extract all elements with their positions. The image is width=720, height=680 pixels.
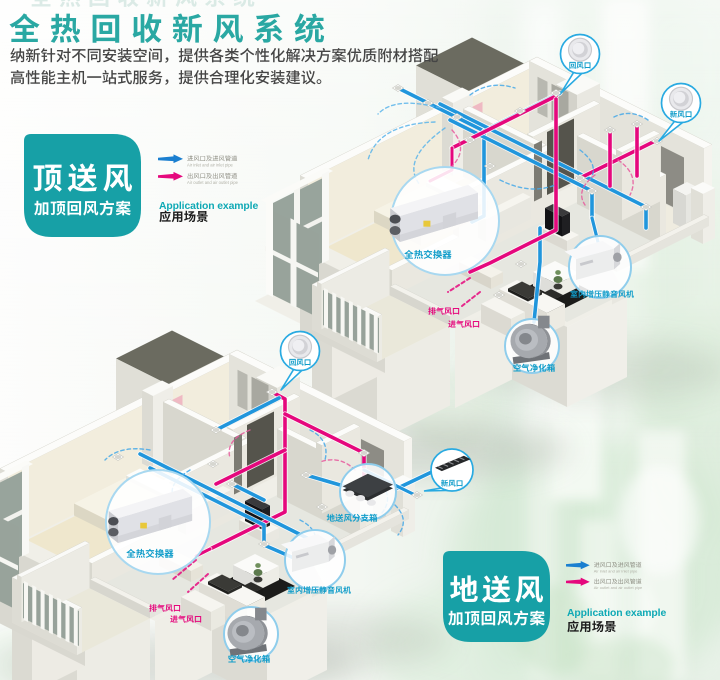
svg-text:Application example: Application example	[567, 608, 666, 619]
svg-text:Air inlet and air inlet pipe: Air inlet and air inlet pipe	[187, 163, 234, 168]
svg-text:Air inlet and air inlet pipe: Air inlet and air inlet pipe	[594, 568, 638, 573]
svg-text:Air outlet and air outlet pipe: Air outlet and air outlet pipe	[187, 180, 239, 185]
svg-text:Application example: Application example	[159, 201, 258, 212]
svg-text:Air outlet and air outlet pipe: Air outlet and air outlet pipe	[594, 585, 643, 590]
